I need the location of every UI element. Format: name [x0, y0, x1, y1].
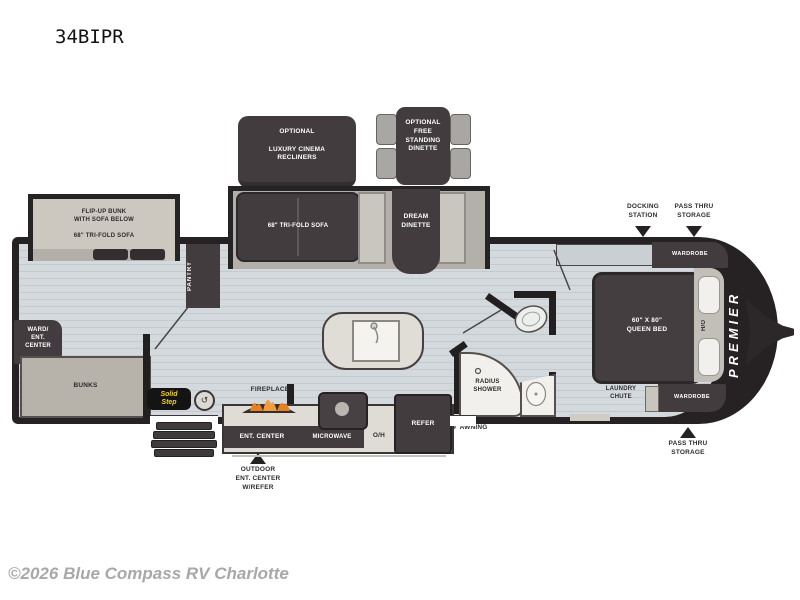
dinette-bench [358, 192, 386, 264]
step [156, 422, 212, 430]
refer-label: REFER [396, 420, 450, 429]
dinette-chair [450, 148, 471, 179]
dream-dinette-label: DREAM DINETTE [392, 213, 440, 231]
window-strip [570, 414, 610, 421]
pass-thru-top-label: PASS THRU STORAGE [664, 203, 724, 221]
wardrobe-top-label: WARDROBE [652, 251, 728, 258]
fireplace-label: FIREPLACE [242, 386, 298, 395]
wardrobe-top: WARDROBE [652, 242, 728, 268]
dinette-label: OPTIONAL FREE STANDING DINETTE [396, 119, 450, 154]
ward-ent-label: WARD/ ENT. CENTER [14, 326, 62, 350]
bunk-sofa-cushion [130, 249, 165, 260]
pass-thru-bottom-label: PASS THRU STORAGE [658, 440, 718, 458]
flip-up-bunk-slide: FLIP-UP BUNK WITH SOFA BELOW 68" TRI-FOL… [28, 194, 180, 261]
optional-free-standing-dinette: OPTIONAL FREE STANDING DINETTE [396, 107, 450, 185]
pillow [698, 338, 720, 376]
docking-station-arrow-icon [635, 226, 651, 237]
step [151, 440, 217, 448]
entry-steps [150, 422, 216, 462]
step [153, 431, 215, 439]
bunks: BUNKS [20, 356, 151, 418]
oh-label: O/H [364, 432, 394, 441]
tri-fold-sofa: 68" TRI-FOLD SOFA [236, 192, 360, 262]
solid-step-badge: Solid Step [147, 388, 191, 410]
outdoor-ent-arrow-icon [250, 453, 266, 464]
sofa-label: 68" TRI-FOLD SOFA [238, 222, 358, 230]
rv-floorplan: 34BIPR OPTIONAL LUXURY CINEMA RECLINERS … [0, 0, 800, 600]
second-door-opening [450, 415, 476, 426]
dinette-chair [450, 114, 471, 145]
microwave-label: MICROWAVE [300, 433, 364, 441]
docking-bay [556, 244, 654, 266]
solid-step-word: Step [161, 399, 176, 406]
laundry-chute-label: LAUNDRY CHUTE [596, 385, 646, 401]
microwave-dial [335, 402, 349, 416]
dream-dinette-table: DREAM DINETTE [392, 189, 440, 274]
microwave [318, 392, 368, 430]
optional-cinema-recliners: OPTIONAL LUXURY CINEMA RECLINERS [238, 116, 356, 188]
laundry-chute-door [645, 386, 659, 412]
solid-step-word: Solid [160, 391, 177, 398]
step [154, 449, 214, 457]
shower-label: RADIUS SHOWER [461, 378, 514, 394]
step-cert-icon: ↺ [194, 390, 215, 411]
kitchen-island [322, 312, 424, 370]
island-sink [352, 320, 400, 362]
wardrobe-bottom-label: WARDROBE [658, 394, 726, 401]
pass-thru-top-arrow-icon [686, 226, 702, 237]
copyright-watermark: ©2026 Blue Compass RV Charlotte [8, 564, 289, 584]
brand-premier: PREMIER [726, 268, 750, 400]
page-title: 34BIPR [55, 26, 124, 48]
ent-center-label: ENT. CENTER [224, 433, 300, 442]
dinette-bench [438, 192, 466, 264]
dinette-chair [376, 114, 397, 145]
recliners-label: OPTIONAL LUXURY CINEMA RECLINERS [238, 128, 356, 163]
bunk-slide-label: FLIP-UP BUNK WITH SOFA BELOW 68" TRI-FOL… [33, 208, 175, 240]
bunk-sofa-cushion [93, 249, 128, 260]
dinette-chair [376, 148, 397, 179]
outdoor-ent-label: OUTDOOR ENT. CENTER W/REFER [222, 466, 294, 492]
bunks-label: BUNKS [22, 382, 149, 391]
pantry-label: PANTRY [186, 244, 220, 308]
pantry: PANTRY [186, 244, 220, 308]
wall-segment [549, 291, 556, 335]
ho-label: H/O [700, 312, 718, 338]
pass-thru-bottom-arrow-icon [680, 427, 696, 438]
queen-bed: 60" X 80" QUEEN BED [592, 272, 702, 384]
pillow [698, 276, 720, 314]
queen-bed-label: 60" X 80" QUEEN BED [595, 317, 699, 335]
bed-headboard: H/O [694, 268, 724, 382]
wardrobe-bottom: WARDROBE [658, 384, 726, 412]
